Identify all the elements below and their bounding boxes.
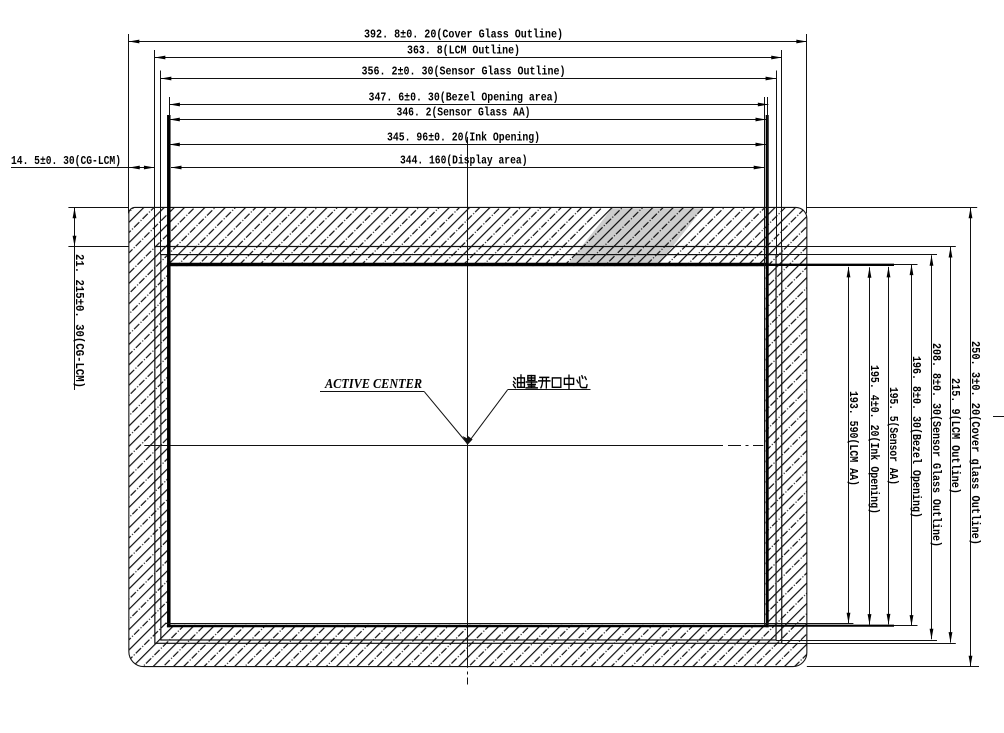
svg-text:250. 3±0. 20(Cover glass Outli: 250. 3±0. 20(Cover glass Outline) — [968, 341, 982, 545]
svg-text:195. 4±0. 20(Ink Opening): 195. 4±0. 20(Ink Opening) — [867, 365, 881, 514]
svg-text:193. 590(LCM AA): 193. 590(LCM AA) — [846, 391, 860, 486]
svg-text:344. 160(Display area): 344. 160(Display area) — [400, 154, 528, 168]
svg-text:ACTIVE CENTER: ACTIVE CENTER — [324, 377, 422, 392]
svg-text:347. 6±0. 30(Bezel Opening are: 347. 6±0. 30(Bezel Opening area) — [369, 91, 559, 105]
svg-text:215. 9(LCM Outline): 215. 9(LCM Outline) — [948, 378, 962, 494]
svg-text:345. 96±0. 20(Ink Opening): 345. 96±0. 20(Ink Opening) — [387, 131, 540, 145]
svg-text:392. 8±0. 20(Cover Glass Outli: 392. 8±0. 20(Cover Glass Outline) — [364, 28, 563, 42]
svg-text:14. 5±0. 30(CG-LCM): 14. 5±0. 30(CG-LCM) — [11, 154, 121, 168]
svg-text:356. 2±0. 30(Sensor Glass Outl: 356. 2±0. 30(Sensor Glass Outline) — [362, 65, 566, 79]
svg-text:208. 8±0. 30(Sensor Glass Outl: 208. 8±0. 30(Sensor Glass Outline) — [929, 343, 943, 547]
svg-text:196. 8±0. 30(Bezel Opening): 196. 8±0. 30(Bezel Opening) — [909, 356, 923, 518]
svg-text:346. 2(Sensor Glass AA): 346. 2(Sensor Glass AA) — [397, 106, 531, 120]
svg-text:21. 215±0. 30(CG-LCM): 21. 215±0. 30(CG-LCM) — [72, 254, 86, 388]
svg-text:363. 8(LCM Outline): 363. 8(LCM Outline) — [407, 44, 520, 58]
svg-text:195. 5(Sensor AA): 195. 5(Sensor AA) — [886, 387, 900, 485]
